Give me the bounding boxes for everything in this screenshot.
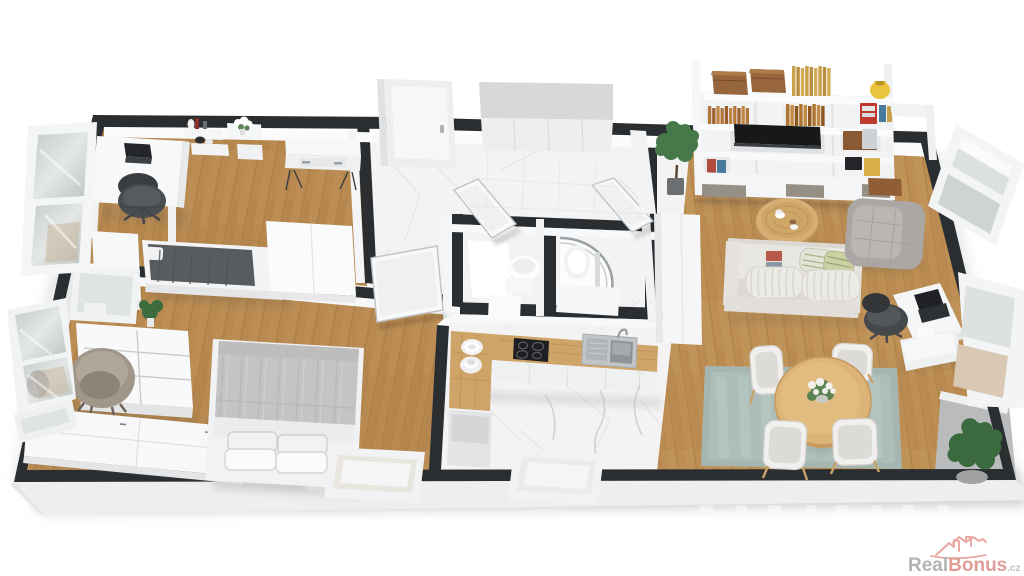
svg-text:RealBonus.cz: RealBonus.cz xyxy=(908,555,1021,576)
